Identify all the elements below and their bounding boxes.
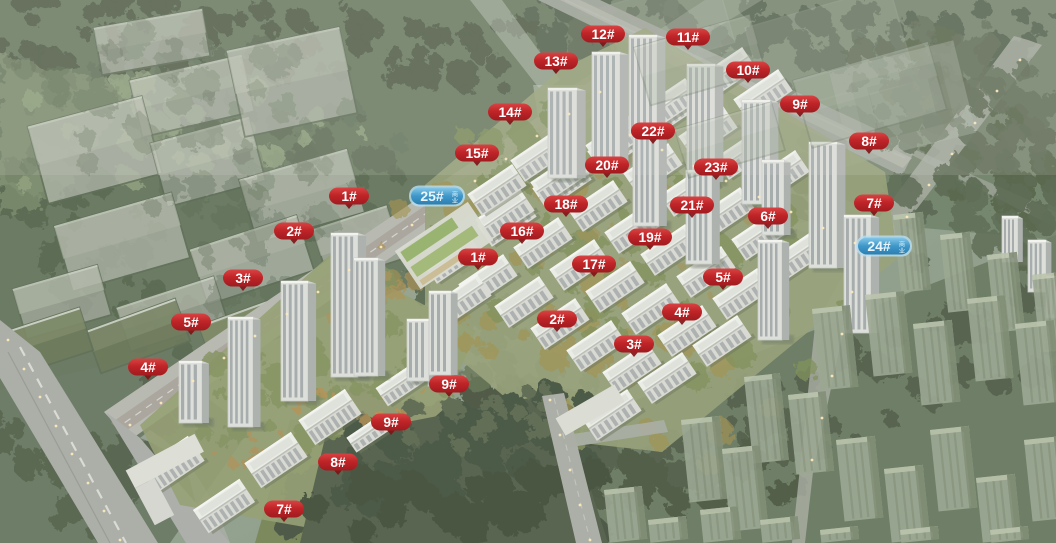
svg-text:20#: 20# (595, 158, 618, 173)
svg-text:2#: 2# (549, 312, 565, 327)
svg-text:9#: 9# (383, 415, 399, 430)
svg-text:24#: 24# (867, 238, 891, 254)
svg-text:8#: 8# (861, 134, 877, 149)
svg-text:业: 业 (899, 247, 905, 255)
svg-text:9#: 9# (441, 377, 457, 392)
svg-text:4#: 4# (674, 305, 690, 320)
svg-text:3#: 3# (235, 271, 251, 286)
svg-text:4#: 4# (140, 360, 156, 375)
svg-text:10#: 10# (736, 63, 759, 78)
svg-text:17#: 17# (582, 257, 605, 272)
svg-text:15#: 15# (465, 146, 488, 161)
svg-text:23#: 23# (704, 160, 727, 175)
svg-text:1#: 1# (470, 250, 486, 265)
svg-text:19#: 19# (638, 230, 661, 245)
svg-text:2#: 2# (286, 224, 302, 239)
svg-text:3#: 3# (626, 337, 642, 352)
svg-text:18#: 18# (554, 197, 577, 212)
svg-text:16#: 16# (510, 224, 533, 239)
svg-text:22#: 22# (641, 124, 664, 139)
svg-text:12#: 12# (591, 27, 614, 42)
svg-text:21#: 21# (680, 198, 703, 213)
svg-text:11#: 11# (677, 30, 700, 45)
svg-text:1#: 1# (341, 189, 357, 204)
svg-text:9#: 9# (792, 97, 808, 112)
svg-text:7#: 7# (866, 196, 882, 211)
svg-text:5#: 5# (183, 315, 199, 330)
svg-text:7#: 7# (276, 502, 292, 517)
svg-text:业: 业 (452, 197, 458, 205)
svg-text:14#: 14# (498, 105, 521, 120)
svg-text:5#: 5# (715, 270, 731, 285)
svg-text:6#: 6# (760, 209, 776, 224)
svg-text:13#: 13# (544, 54, 567, 69)
svg-text:25#: 25# (420, 188, 444, 204)
svg-text:8#: 8# (330, 455, 346, 470)
